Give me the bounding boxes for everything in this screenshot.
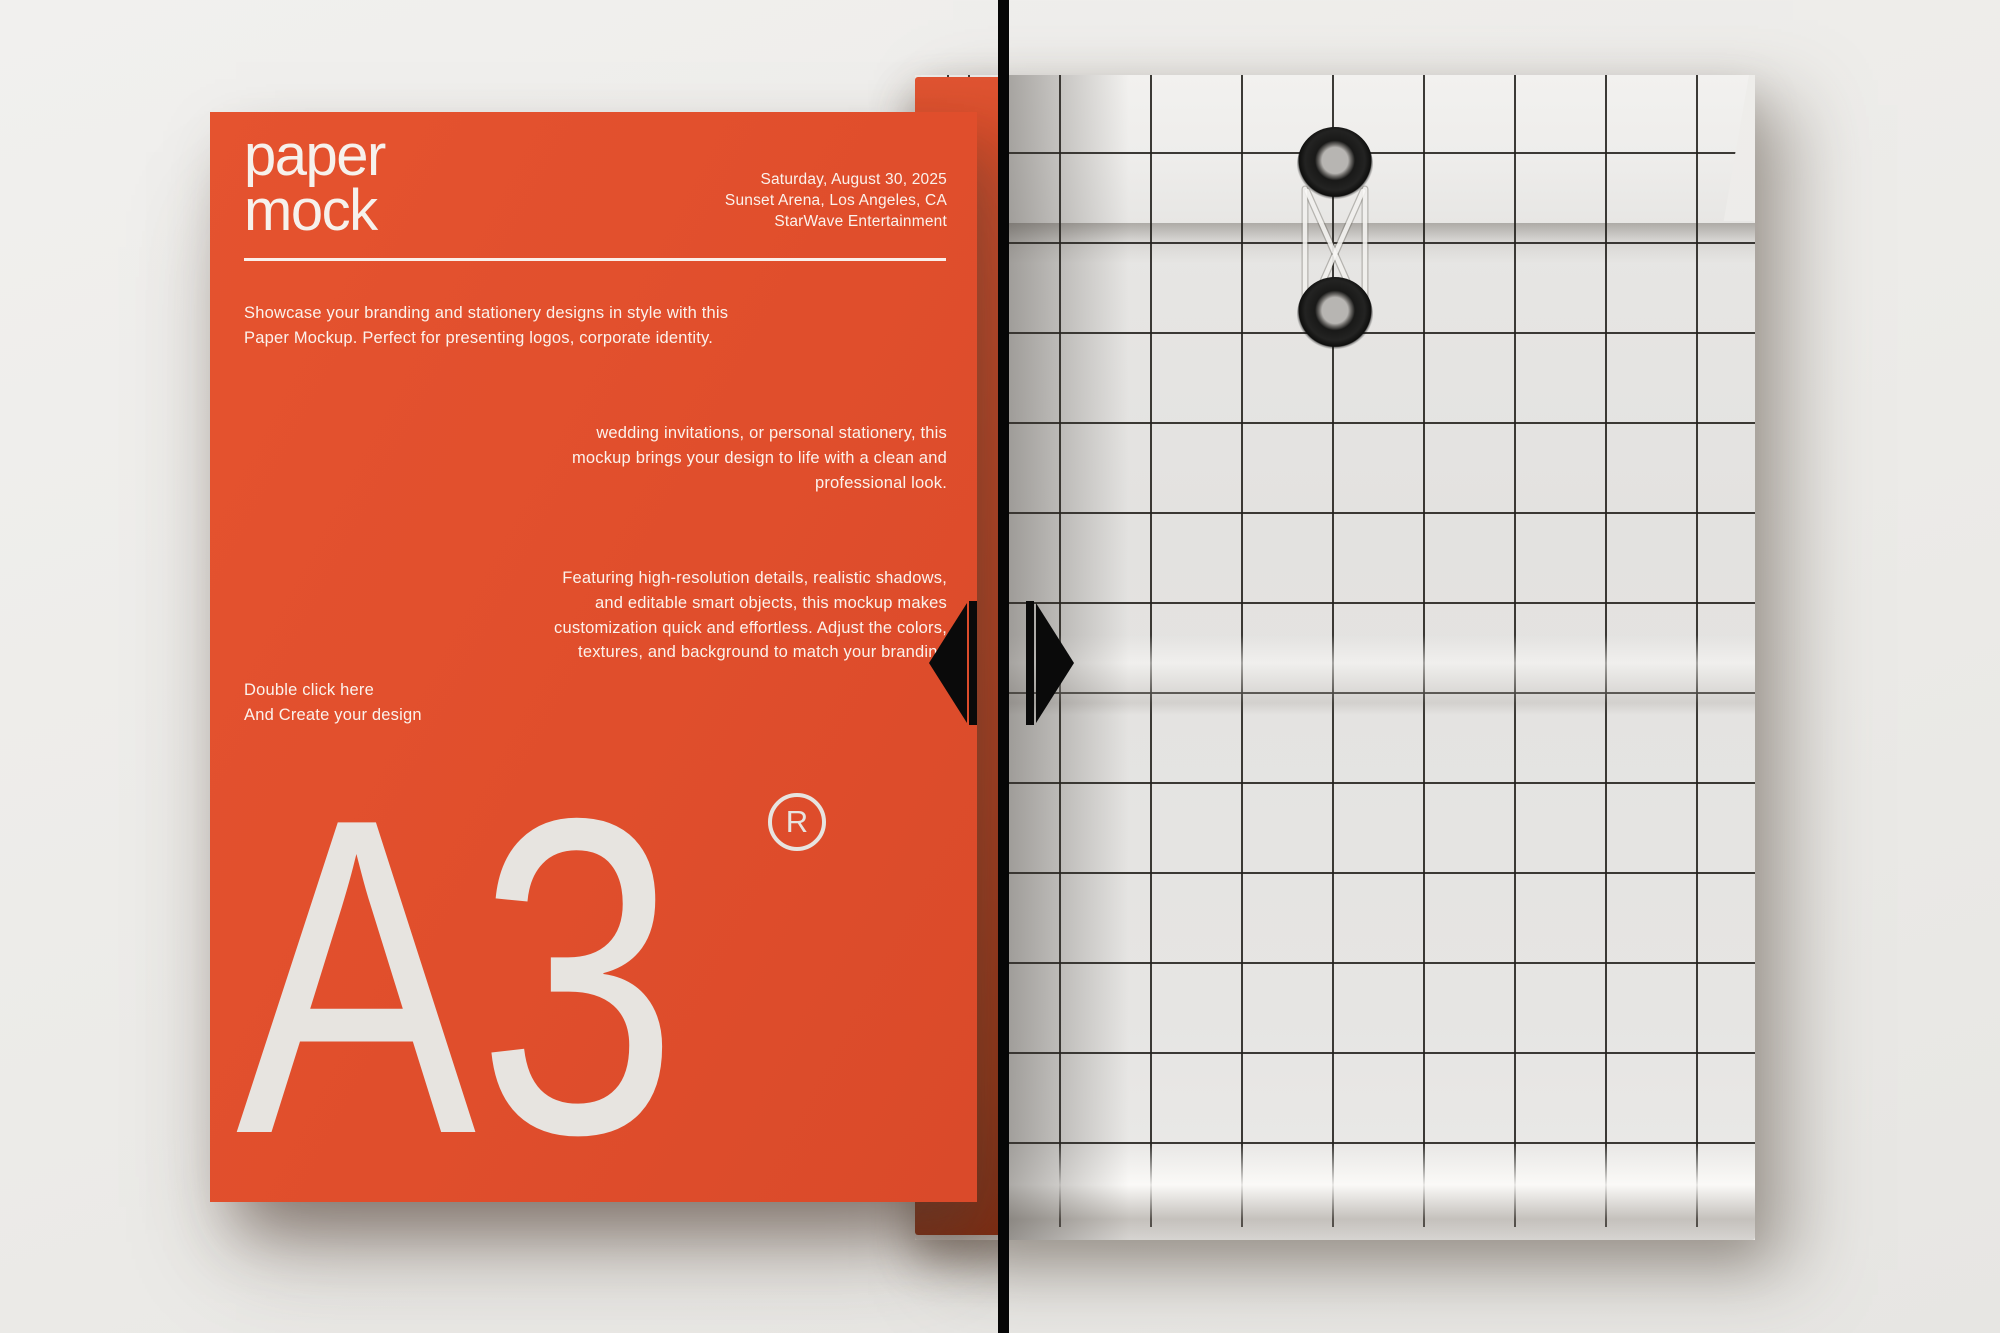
- slider-handle-bar-right[interactable]: [1026, 601, 1034, 725]
- intro-line: Showcase your branding and stationery de…: [244, 301, 728, 326]
- poster-canvas[interactable]: paper mock Saturday, August 30, 2025 Sun…: [210, 112, 977, 1202]
- continuation-paragraph: wedding invitations, or personal station…: [572, 421, 947, 495]
- continuation-line: wedding invitations, or personal station…: [572, 421, 947, 446]
- logo: paper mock: [244, 128, 385, 238]
- intro-line: Paper Mockup. Perfect for presenting log…: [244, 326, 728, 351]
- slider-handle-bar-left[interactable]: [969, 601, 977, 725]
- cta-line: And Create your design: [244, 703, 422, 728]
- features-paragraph: Featuring high-resolution details, reali…: [554, 566, 947, 665]
- grommet-top: [1297, 127, 1373, 203]
- features-line: textures, and background to match your b…: [554, 640, 947, 665]
- mockup-stage: paper mock Saturday, August 30, 2025 Sun…: [0, 0, 2000, 1333]
- intro-paragraph: Showcase your branding and stationery de…: [244, 301, 728, 351]
- logo-line-1: paper: [244, 128, 385, 183]
- registered-trademark-icon: R: [768, 793, 826, 851]
- event-details: Saturday, August 30, 2025 Sunset Arena, …: [725, 170, 947, 232]
- grommet-bottom: [1297, 277, 1373, 353]
- logo-line-2: mock: [244, 183, 385, 238]
- features-line: customization quick and effortless. Adju…: [554, 616, 947, 641]
- continuation-line: mockup brings your design to life with a…: [572, 446, 947, 471]
- size-label: A3: [236, 752, 680, 1202]
- features-line: and editable smart objects, this mockup …: [554, 591, 947, 616]
- cta-line: Double click here: [244, 678, 422, 703]
- comparison-slider-divider[interactable]: [998, 0, 1009, 1333]
- continuation-line: professional look.: [572, 471, 947, 496]
- event-venue: Sunset Arena, Los Angeles, CA: [725, 191, 947, 212]
- after-side: paper mock Saturday, August 30, 2025 Sun…: [0, 0, 1003, 1333]
- features-line: Featuring high-resolution details, reali…: [554, 566, 947, 591]
- event-organizer: StarWave Entertainment: [725, 212, 947, 233]
- header-rule: [244, 258, 946, 261]
- double-click-hint[interactable]: Double click here And Create your design: [244, 678, 422, 728]
- event-date: Saturday, August 30, 2025: [725, 170, 947, 191]
